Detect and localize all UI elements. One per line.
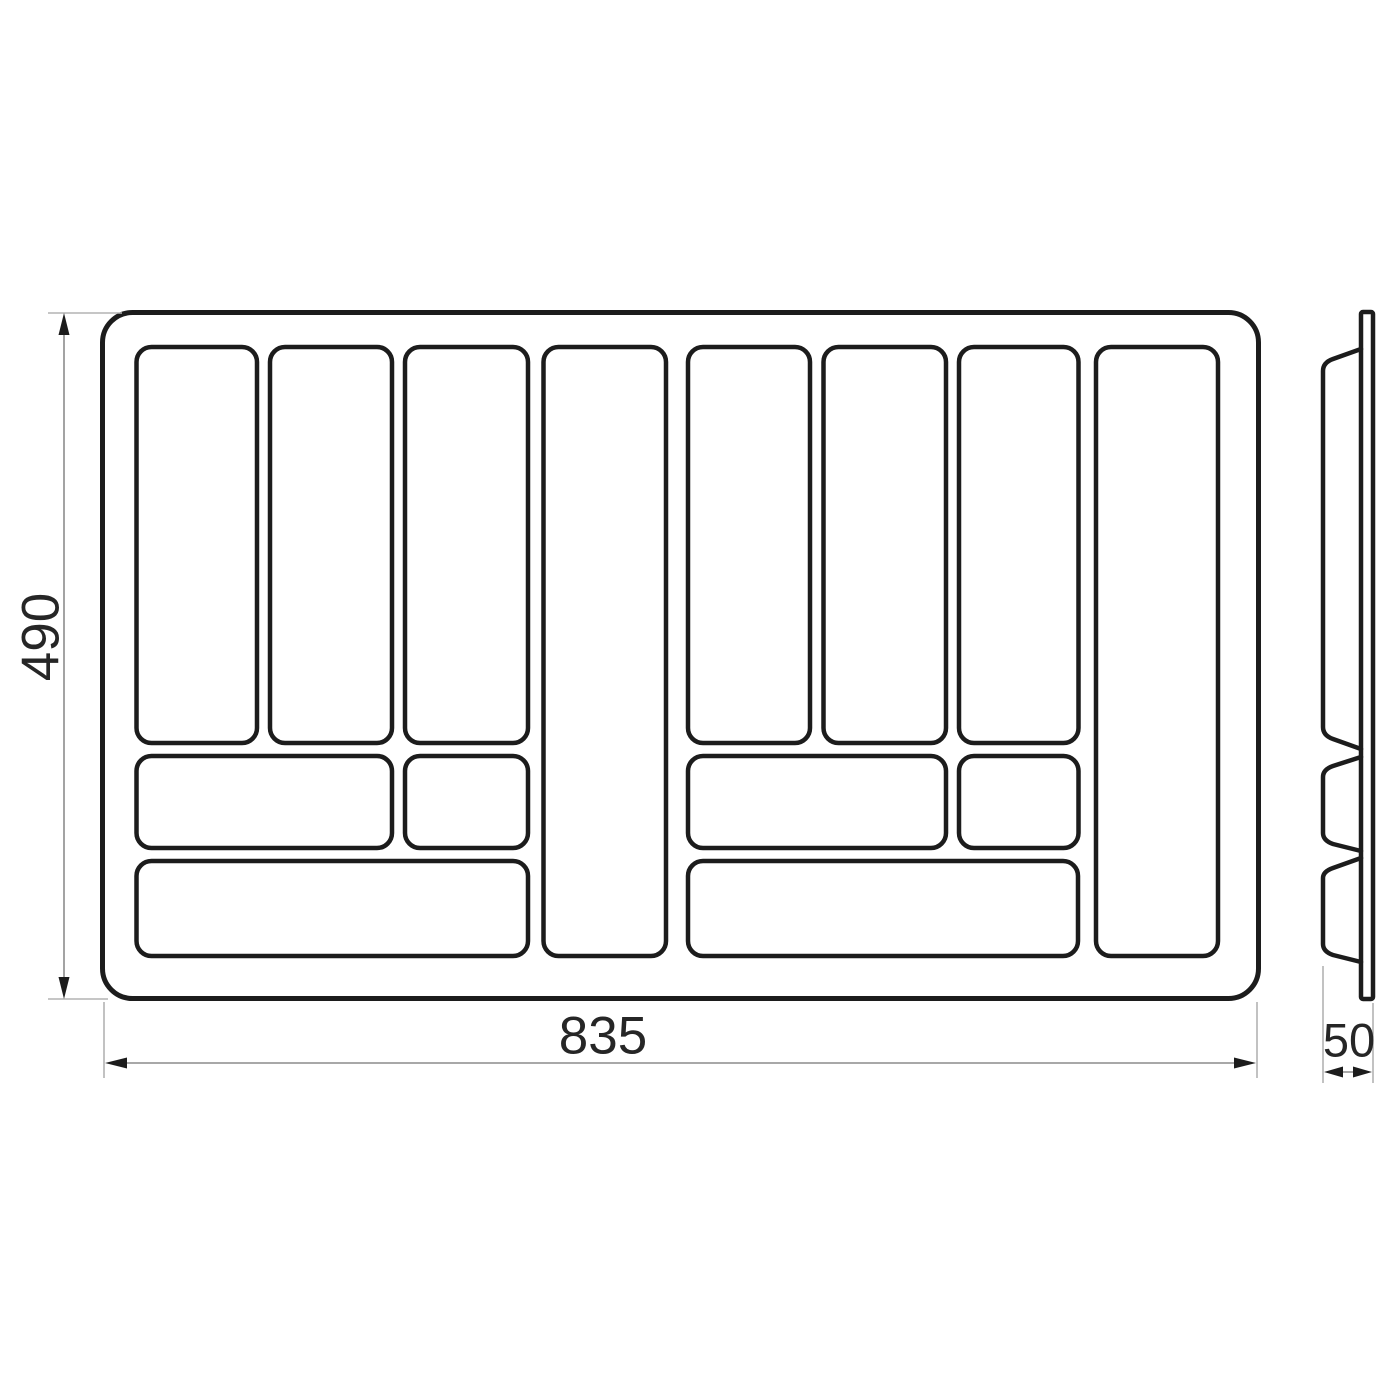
height-dimension: 490 bbox=[12, 313, 123, 999]
width-dimension-label: 835 bbox=[559, 1007, 647, 1066]
compartment-tall-left-2 bbox=[270, 347, 392, 743]
arrow-up-icon bbox=[59, 313, 70, 335]
compartment-mid-left-wide bbox=[137, 756, 393, 848]
arrow-right-icon bbox=[1234, 1058, 1256, 1069]
arrow-down-icon bbox=[59, 977, 70, 999]
arrow-right-small-icon bbox=[1353, 1067, 1372, 1078]
compartment-tall-right-1 bbox=[688, 347, 810, 743]
side-view bbox=[1323, 312, 1373, 999]
arrow-left-small-icon bbox=[1324, 1067, 1343, 1078]
drawing-canvas: 490 835 50 bbox=[0, 0, 1400, 1400]
compartment-mid-right-wide bbox=[688, 756, 946, 848]
arrow-left-icon bbox=[105, 1058, 127, 1069]
compartment-tall-left-3 bbox=[405, 347, 528, 743]
height-dimension-label: 490 bbox=[12, 593, 71, 681]
width-dimension: 835 bbox=[104, 1002, 1257, 1078]
compartment-right-full-height bbox=[1096, 347, 1218, 956]
compartment-tall-right-2 bbox=[824, 347, 947, 743]
depth-dimension: 50 bbox=[1323, 966, 1375, 1083]
compartment-center-full-height bbox=[544, 347, 667, 956]
side-profile-bump-bottom bbox=[1323, 858, 1361, 962]
front-view bbox=[103, 313, 1259, 999]
compartment-tall-right-3 bbox=[959, 347, 1079, 743]
compartment-mid-right-small bbox=[959, 756, 1079, 848]
depth-dimension-label: 50 bbox=[1323, 1014, 1375, 1067]
compartment-tall-left-1 bbox=[137, 347, 258, 743]
compartment-mid-left-small bbox=[405, 756, 528, 848]
technical-drawing: 490 835 50 bbox=[0, 0, 1400, 1400]
side-profile-back-panel bbox=[1361, 312, 1373, 999]
compartment-bottom-left-wide bbox=[137, 861, 529, 956]
side-profile-bump-middle bbox=[1323, 757, 1361, 851]
side-profile-bump-top bbox=[1323, 349, 1361, 749]
compartment-bottom-right-wide bbox=[688, 861, 1078, 956]
tray-outline bbox=[103, 313, 1259, 999]
